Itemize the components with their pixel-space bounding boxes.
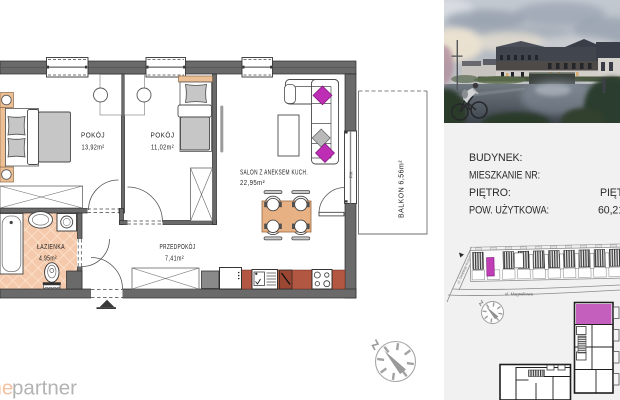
svg-text:MIESZKANIE NR:: MIESZKANIE NR: xyxy=(469,170,540,182)
svg-text:13,92m²: 13,92m² xyxy=(82,145,105,152)
svg-text:PIĘTRO:: PIĘTRO: xyxy=(469,187,511,199)
svg-text:PRZEDPOKÓJ: PRZEDPOKÓJ xyxy=(160,242,196,251)
svg-text:11,02m²: 11,02m² xyxy=(151,145,174,152)
svg-text:PIĘTRO: PIĘTRO xyxy=(600,187,620,199)
svg-text:POKÓJ: POKÓJ xyxy=(81,131,105,140)
svg-text:60,21 m²: 60,21 m² xyxy=(598,205,620,217)
svg-text:FIX: FIX xyxy=(349,171,354,178)
svg-text:ŁAZIENKA: ŁAZIENKA xyxy=(37,244,65,251)
svg-text:POW. UŻYTKOWA:: POW. UŻYTKOWA: xyxy=(469,204,549,217)
svg-text:22,95m²: 22,95m² xyxy=(240,180,265,187)
svg-text:POKÓJ: POKÓJ xyxy=(151,131,175,140)
svg-text:ul. Magnoliowa: ul. Magnoliowa xyxy=(505,292,534,297)
svg-text:BALKON 6,56m²: BALKON 6,56m² xyxy=(397,160,406,218)
svg-text:BUDYNEK:: BUDYNEK: xyxy=(469,152,522,164)
svg-text:SALON Z ANEKSEM KUCH.: SALON Z ANEKSEM KUCH. xyxy=(240,170,308,177)
svg-text:7,41m²: 7,41m² xyxy=(165,256,184,263)
svg-text:4,95m²: 4,95m² xyxy=(39,256,57,263)
svg-text:partner: partner xyxy=(12,377,77,400)
